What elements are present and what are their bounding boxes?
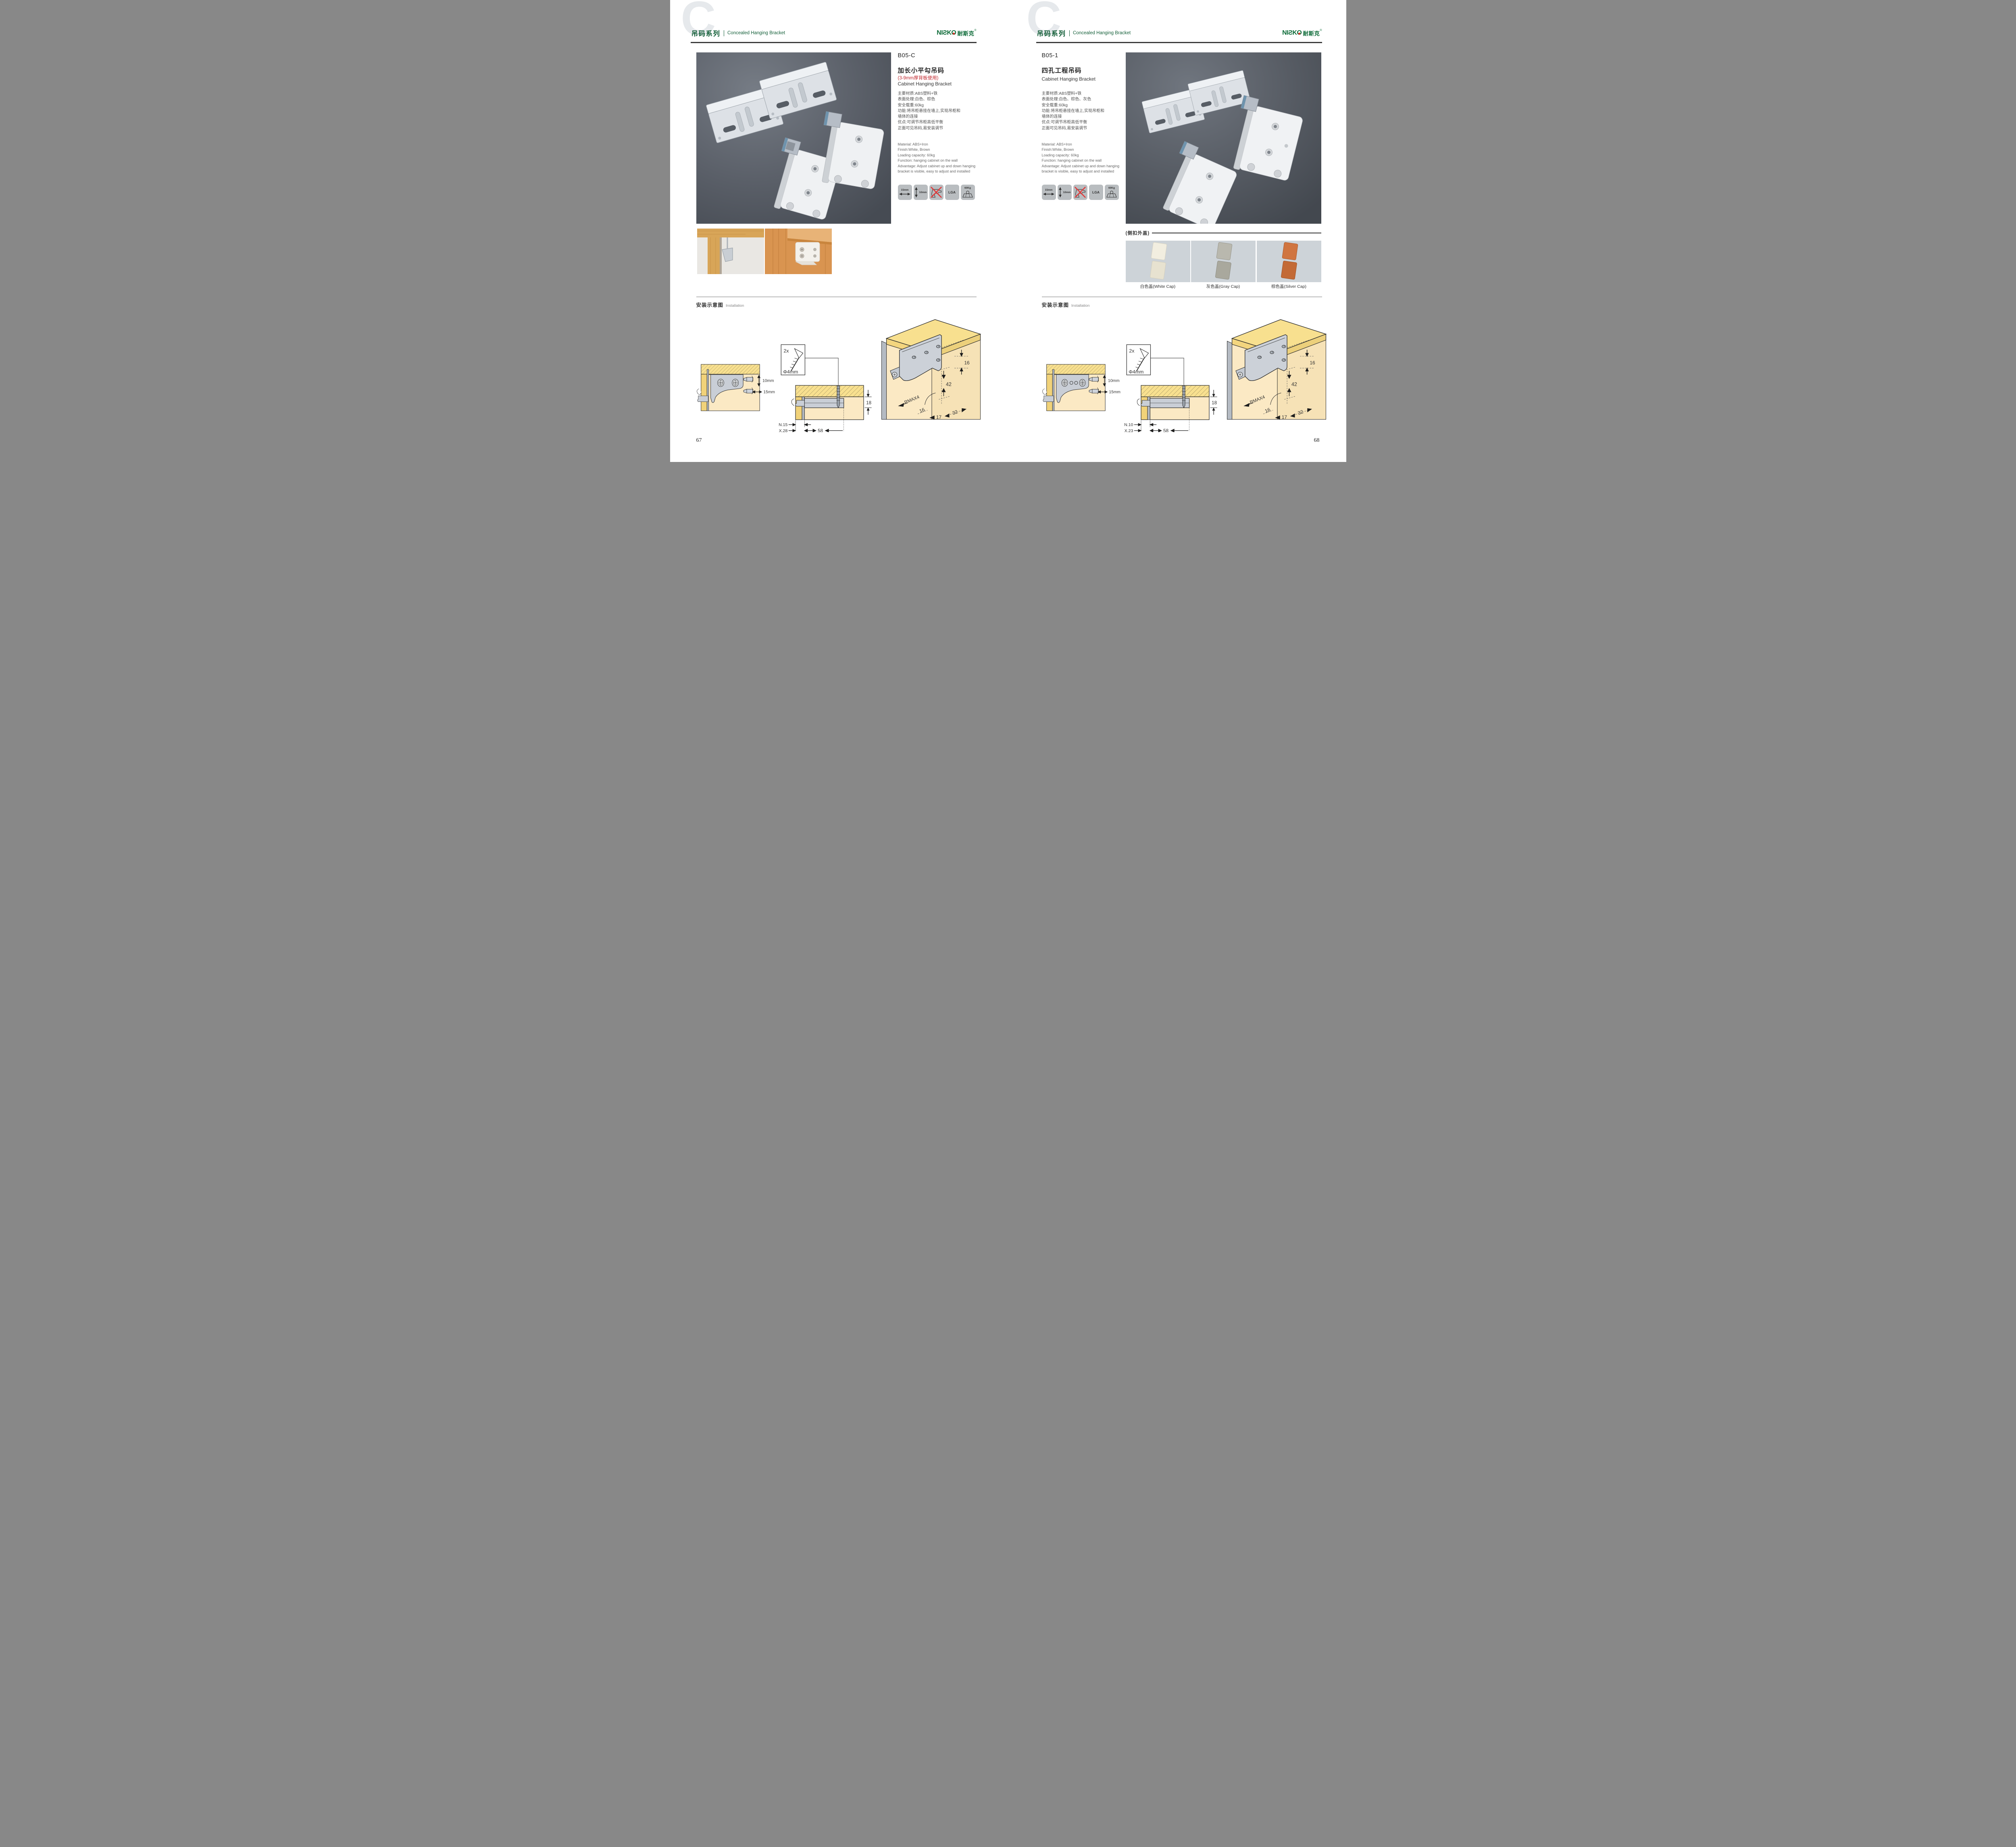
installation-diagram-section: 10mm 15mm [1042,362,1125,413]
product-name-en: Cabinet Hanging Bracket [1042,76,1095,82]
icon-tile-width: 15mm [898,185,912,200]
icon-tile-cert: LGA [1089,185,1103,200]
installation-diagram-screw: 2x Φ4mm [779,343,874,432]
width-label: 15mm [901,189,909,191]
spec-line: Function: hanging cabinet on the wall [898,158,976,163]
brand-logo-cn: 耐斯克 [1303,29,1320,37]
dim-label: 42 [946,381,951,387]
height-label: 10mm [919,191,927,194]
spec-line: Function: hanging cabinet on the wall [1042,158,1120,163]
registered-mark: ® [974,29,976,32]
dim-label: 42 [1291,381,1297,387]
product-code: B05-1 [1042,52,1058,59]
dim-label: 15mm [763,390,775,395]
installation-diagram-screw: 2x Φ4mm [1125,343,1219,432]
installation-title: 安装示意图 Installation [1042,301,1090,308]
header-divider [1069,30,1070,36]
cap-swatch-white [1126,241,1190,282]
spec-line: 主要材质:ABS塑料+铁 [1042,91,1105,97]
dim-label: 16 [964,360,970,366]
icon-tile-no-drill [929,185,943,200]
header-divider [724,30,725,36]
page-header: 吊码系列 Concealed Hanging Bracket [1037,28,1131,38]
weight-icon [962,190,974,198]
icon-tile-height: 10mm [914,185,928,200]
installation-rule [696,297,977,297]
specs-en: Material: ABS+Iron Finish:White, Brown L… [1042,142,1120,174]
dim-label: 15mm [1109,390,1120,395]
cert-label: LGA [1092,190,1100,194]
cap-swatch-gray [1191,241,1256,282]
page-header: 吊码系列 Concealed Hanging Bracket [691,28,785,38]
installation-diagram-section: 10mm 15mm [696,362,779,413]
brand-logo: NIƧKO 耐斯克 ® [1282,29,1322,37]
installation-diagram-3d: 16 42 RMAX4 16 17 32 [1220,315,1328,420]
spec-line: 安全载重:60kg [1042,103,1105,108]
spec-line: 表面处理:白色、棕色、灰色 [1042,97,1105,102]
spec-line: Loading capacity: 60kg [1042,153,1120,158]
screw-qty: 2x [783,348,789,354]
icon-tile-load: 60Kg [1105,185,1119,200]
spec-line: 墙体的连接 [1042,114,1105,120]
load-label: 60Kg [1108,187,1115,189]
spec-line: 安全载重:60kg [898,103,961,108]
caps-section-header: (侧扣外盖) [1126,230,1321,236]
load-label: 60Kg [964,187,971,189]
spec-line: Material: ABS+Iron [1042,142,1120,147]
spec-line: Loading capacity: 60kg [898,153,976,158]
feature-icons: 15mm 10mm LGA 6 [1042,185,1119,200]
registered-mark: ® [1320,29,1322,32]
brand-logo-cn: 耐斯克 [957,29,974,37]
spec-line: Advantage: Adjust cabinet up and down ha… [898,164,976,169]
installation-title: 安装示意图 Installation [696,301,744,308]
spec-line: 主要材质:ABS塑料+铁 [898,91,961,97]
series-title-en: Concealed Hanging Bracket [1073,31,1131,35]
icon-tile-no-drill [1073,185,1087,200]
icon-tile-width: 15mm [1042,185,1056,200]
installation-diagram-3d: 16 42 RMAX4 16 17 32 [875,315,983,420]
spec-line: Finish:White, Brown [898,147,976,152]
cap-caption: 白色盖(White Cap) [1126,283,1190,289]
cap-caption: 灰色盖(Gray Cap) [1191,283,1256,289]
screw-diameter: Φ4mm [783,369,798,374]
catalog-spread: C 吊码系列 Concealed Hanging Bracket NIƧKO 耐… [670,0,1346,462]
spec-line: 表面处理:白色、棕色 [898,97,961,102]
height-label: 10mm [1063,191,1071,194]
dim-label: MIN.15 [779,423,787,427]
spec-line: Finish:White, Brown [1042,147,1120,152]
dim-label: 18 [866,400,871,406]
weight-icon [1106,190,1118,198]
spec-line: 功能:将吊柜悬挂在墙上,实现吊柜和 [1042,108,1105,114]
product-code: B05-C [898,52,916,59]
vertical-arrow-icon [914,187,918,198]
caps-section-label: (侧扣外盖) [1126,230,1150,236]
dim-label: 17 [936,414,941,420]
page-67: C 吊码系列 Concealed Hanging Bracket NIƧKO 耐… [670,0,1008,462]
spec-line: Advantage: Adjust cabinet up and down ha… [1042,164,1120,169]
dim-label: MIN.10 [1125,423,1133,427]
width-label: 15mm [1045,189,1053,191]
cap-swatch-brown [1257,241,1321,282]
spec-line: 正面可见吊码,易安装调节 [898,126,961,131]
spec-line: 优点:可调节吊柜高低平衡 [1042,120,1105,125]
page-number: 68 [1314,437,1320,444]
brand-logo-latin: NIƧKO [937,29,956,37]
page-68: C 吊码系列 Concealed Hanging Bracket NIƧKO 耐… [1008,0,1346,462]
application-photo-hook [697,229,764,274]
spec-line: bracket is visible, easy to adjust and i… [898,169,976,174]
brand-logo-latin: NIƧKO [1282,29,1302,37]
vertical-arrow-icon [1058,187,1062,198]
cap-caption: 棕色盖(Silver Cap) [1257,283,1321,289]
specs-en: Material: ABS+Iron Finish:White, Brown L… [898,142,976,174]
installation-title-cn: 安装示意图 [1042,301,1069,308]
installation-title-en: Installation [1071,304,1089,308]
product-photo-b051 [1126,52,1321,224]
dim-label: 58 [1163,428,1168,432]
series-title-en: Concealed Hanging Bracket [727,31,785,35]
dim-label: MAX.28 [779,429,787,432]
spec-line: 正面可见吊码,易安装调节 [1042,126,1105,131]
icon-tile-load: 60Kg [961,185,975,200]
page-number: 67 [696,437,702,444]
product-name-cn: 加长小平勾吊码 [898,66,945,75]
series-title-cn: 吊码系列 [691,28,721,38]
dim-label: 17 [1281,414,1287,420]
brand-logo-dot-icon [953,33,955,35]
product-photo-b05c [696,52,891,224]
screw-diameter: Φ4mm [1129,369,1143,374]
horizontal-arrow-icon [899,192,910,196]
installation-title-en: Installation [726,304,744,308]
installation-rule [1042,297,1322,297]
caps-section-rule [1152,233,1321,233]
product-name-en: Cabinet Hanging Bracket [898,81,952,87]
no-drill-icon [1074,186,1086,198]
installed-white-bracket [796,242,820,265]
icon-tile-height: 10mm [1058,185,1072,200]
dim-label: MAX.23 [1125,429,1133,432]
feature-icons: 15mm 10mm LGA 6 [898,185,975,200]
cert-label: LGA [948,190,956,194]
product-note-red: (3-9mm厚背板使用) [898,75,939,81]
specs-cn: 主要材质:ABS塑料+铁 表面处理:白色、棕色、灰色 安全载重:60kg 功能:… [1042,91,1105,131]
dim-label: 10mm [1108,379,1119,383]
brand-logo-dot-icon [1298,33,1300,35]
horizontal-arrow-icon [1043,192,1054,196]
spec-line: bracket is visible, easy to adjust and i… [1042,169,1120,174]
no-drill-icon [930,186,942,198]
spec-line: 墙体的连接 [898,114,961,120]
spec-line: 功能:将吊柜悬挂在墙上,实现吊柜和 [898,108,961,114]
dim-label: 16 [1310,360,1315,366]
specs-cn: 主要材质:ABS塑料+铁 表面处理:白色、棕色 安全载重:60kg 功能:将吊柜… [898,91,961,131]
header-rule [691,42,977,43]
header-rule [1036,42,1322,43]
dim-label: 58 [818,428,823,432]
brand-logo: NIƧKO 耐斯克 ® [937,29,976,37]
installation-title-cn: 安装示意图 [696,301,724,308]
dim-label: 18 [1212,400,1217,406]
application-photo-bracket [765,229,832,274]
series-title-cn: 吊码系列 [1037,28,1066,38]
dim-label: 10mm [762,379,774,383]
icon-tile-cert: LGA [945,185,959,200]
screw-qty: 2x [1129,348,1135,354]
spec-line: 优点:可调节吊柜高低平衡 [898,120,961,125]
spec-line: Material: ABS+Iron [898,142,976,147]
product-name-cn: 四孔工程吊码 [1042,66,1082,75]
